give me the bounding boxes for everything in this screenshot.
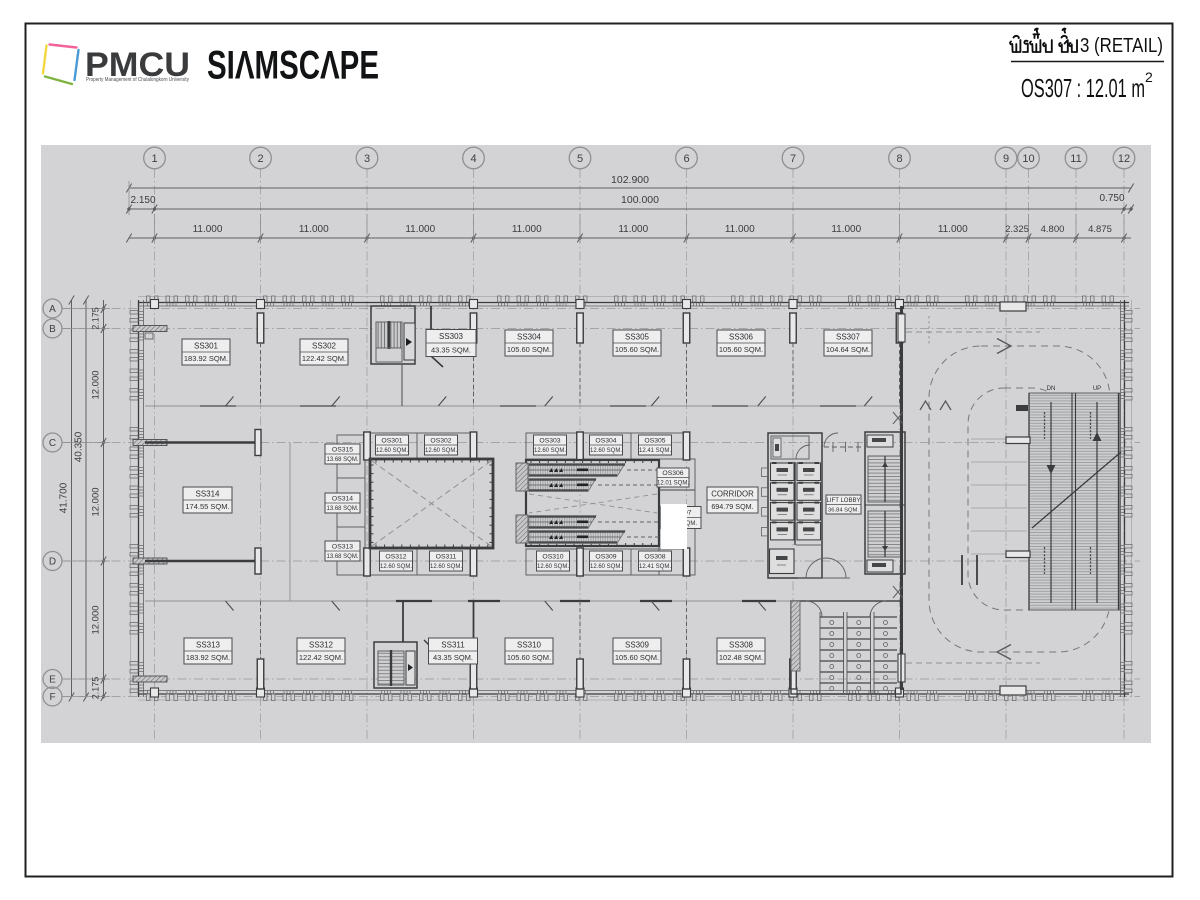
svg-text:174.55 SQM.: 174.55 SQM. <box>185 502 229 511</box>
svg-text:12.000: 12.000 <box>91 605 102 634</box>
svg-text:2.175: 2.175 <box>91 307 101 330</box>
svg-text:102.900: 102.900 <box>611 174 649 186</box>
svg-text:SS302: SS302 <box>312 341 337 350</box>
svg-text:2.175: 2.175 <box>91 677 101 700</box>
svg-text:OS307 : 12.01 m: OS307 : 12.01 m <box>1021 73 1145 103</box>
svg-text:SS305: SS305 <box>625 332 650 341</box>
svg-text:1: 1 <box>151 153 157 165</box>
svg-text:36.84 SQM.: 36.84 SQM. <box>828 507 859 513</box>
svg-text:11.000: 11.000 <box>618 224 648 235</box>
svg-text:2.150: 2.150 <box>130 195 155 206</box>
svg-text:43.35 SQM.: 43.35 SQM. <box>433 653 473 662</box>
svg-text:2: 2 <box>1145 69 1153 85</box>
svg-text:SIΛMSCΛPE: SIΛMSCΛPE <box>207 44 379 88</box>
svg-text:OS306: OS306 <box>662 470 683 477</box>
svg-text:SS309: SS309 <box>625 640 650 649</box>
svg-text:12.60 SQM.: 12.60 SQM. <box>425 448 457 454</box>
svg-text:SS313: SS313 <box>196 640 221 649</box>
svg-text:105.60 SQM.: 105.60 SQM. <box>507 653 551 662</box>
svg-text:CORRIDOR: CORRIDOR <box>711 489 754 498</box>
svg-text:12.60 SQM.: 12.60 SQM. <box>380 564 412 570</box>
svg-text:694.79 SQM.: 694.79 SQM. <box>711 502 753 511</box>
svg-text:105.60 SQM.: 105.60 SQM. <box>615 653 659 662</box>
svg-text:D: D <box>49 557 56 568</box>
svg-text:SS312: SS312 <box>309 640 334 649</box>
svg-text:4.800: 4.800 <box>1041 224 1065 235</box>
svg-text:B: B <box>49 324 56 335</box>
svg-text:12.60 SQM.: 12.60 SQM. <box>376 448 408 454</box>
svg-text:11.000: 11.000 <box>725 224 755 235</box>
svg-text:SS306: SS306 <box>729 332 754 341</box>
svg-text:OS315: OS315 <box>332 446 353 453</box>
svg-text:9: 9 <box>1003 153 1009 165</box>
svg-text:102.48 SQM.: 102.48 SQM. <box>719 653 763 662</box>
svg-text:3: 3 <box>364 153 370 165</box>
svg-text:UP: UP <box>1093 386 1101 392</box>
svg-text:183.92 SQM.: 183.92 SQM. <box>186 653 230 662</box>
svg-text:12.60 SQM.: 12.60 SQM. <box>534 448 566 454</box>
svg-text:SS303: SS303 <box>439 332 464 341</box>
svg-text:C: C <box>49 438 56 449</box>
svg-text:41.700: 41.700 <box>59 482 70 513</box>
svg-text:11.000: 11.000 <box>405 224 435 235</box>
svg-text:OS305: OS305 <box>644 437 665 444</box>
svg-text:11.000: 11.000 <box>299 224 329 235</box>
svg-text:SS310: SS310 <box>517 640 542 649</box>
svg-text:DN: DN <box>1047 386 1056 392</box>
svg-text:12.60 SQM.: 12.60 SQM. <box>590 448 622 454</box>
svg-text:13.68 SQM.: 13.68 SQM. <box>326 554 358 560</box>
svg-text:LIFT LOBBY: LIFT LOBBY <box>827 498 861 504</box>
svg-text:11.000: 11.000 <box>193 224 223 235</box>
svg-text:SS307: SS307 <box>836 332 861 341</box>
svg-text:12.01 SQM.: 12.01 SQM. <box>657 480 689 486</box>
svg-text:105.60 SQM.: 105.60 SQM. <box>615 345 659 354</box>
svg-text:183.92 SQM.: 183.92 SQM. <box>184 354 228 363</box>
svg-text:7: 7 <box>790 153 796 165</box>
svg-text:2.325: 2.325 <box>1005 224 1029 235</box>
svg-text:12.60 SQM.: 12.60 SQM. <box>537 564 569 570</box>
svg-text:OS313: OS313 <box>332 543 353 550</box>
svg-text:SS308: SS308 <box>729 640 754 649</box>
svg-text:10: 10 <box>1022 153 1034 165</box>
svg-text:OS304: OS304 <box>595 437 616 444</box>
svg-text:OS310: OS310 <box>542 553 563 560</box>
svg-text:OS302: OS302 <box>430 437 451 444</box>
svg-text:100.000: 100.000 <box>621 194 659 206</box>
svg-text:11.000: 11.000 <box>512 224 542 235</box>
svg-text:105.60 SQM.: 105.60 SQM. <box>719 345 763 354</box>
svg-text:OS311: OS311 <box>436 553 457 560</box>
svg-text:11.000: 11.000 <box>938 224 968 235</box>
svg-text:105.60 SQM.: 105.60 SQM. <box>507 345 551 354</box>
svg-text:SS301: SS301 <box>194 341 219 350</box>
svg-text:13.68 SQM.: 13.68 SQM. <box>326 506 358 512</box>
svg-text:12.60 SQM.: 12.60 SQM. <box>590 564 622 570</box>
svg-text:12.000: 12.000 <box>91 370 102 399</box>
svg-text:OS309: OS309 <box>595 553 616 560</box>
svg-text:SS311: SS311 <box>441 640 465 649</box>
svg-text:13.68 SQM.: 13.68 SQM. <box>326 457 358 463</box>
svg-text:0.750: 0.750 <box>1099 193 1124 204</box>
svg-text:OS312: OS312 <box>385 553 406 560</box>
svg-text:12.41 SQM.: 12.41 SQM. <box>639 564 671 570</box>
svg-text:122.42 SQM.: 122.42 SQM. <box>302 354 346 363</box>
svg-text:SS314: SS314 <box>195 489 220 498</box>
svg-text:43.35 SQM.: 43.35 SQM. <box>431 345 471 354</box>
svg-text:12.000: 12.000 <box>91 487 102 516</box>
svg-text:6: 6 <box>683 153 689 165</box>
svg-text:5: 5 <box>577 153 583 165</box>
svg-text:SS304: SS304 <box>517 332 542 341</box>
svg-text:Property Management of Chulalo: Property Management of Chulalongkorn Uni… <box>86 77 189 83</box>
svg-text:12.41 SQM.: 12.41 SQM. <box>639 448 671 454</box>
svg-text:OS301: OS301 <box>381 437 402 444</box>
svg-text:122.42 SQM.: 122.42 SQM. <box>299 653 343 662</box>
svg-text:4.875: 4.875 <box>1088 224 1112 235</box>
svg-text:104.64 SQM.: 104.64 SQM. <box>826 345 870 354</box>
svg-text:OS303: OS303 <box>539 437 560 444</box>
svg-text:F: F <box>49 692 55 703</box>
svg-text:OS308: OS308 <box>644 553 665 560</box>
svg-text:40.350: 40.350 <box>74 431 85 462</box>
svg-text:4: 4 <box>470 153 476 165</box>
svg-text:12: 12 <box>1118 153 1130 165</box>
svg-text:OS314: OS314 <box>332 495 353 502</box>
svg-text:3 (RETAIL): 3 (RETAIL) <box>1080 34 1163 57</box>
svg-text:E: E <box>49 675 56 686</box>
svg-text:2: 2 <box>257 153 263 165</box>
svg-text:12.60 SQM.: 12.60 SQM. <box>430 564 462 570</box>
svg-text:A: A <box>49 304 56 315</box>
svg-text:8: 8 <box>896 153 902 165</box>
svg-text:11: 11 <box>1070 153 1081 165</box>
svg-text:11.000: 11.000 <box>831 224 861 235</box>
